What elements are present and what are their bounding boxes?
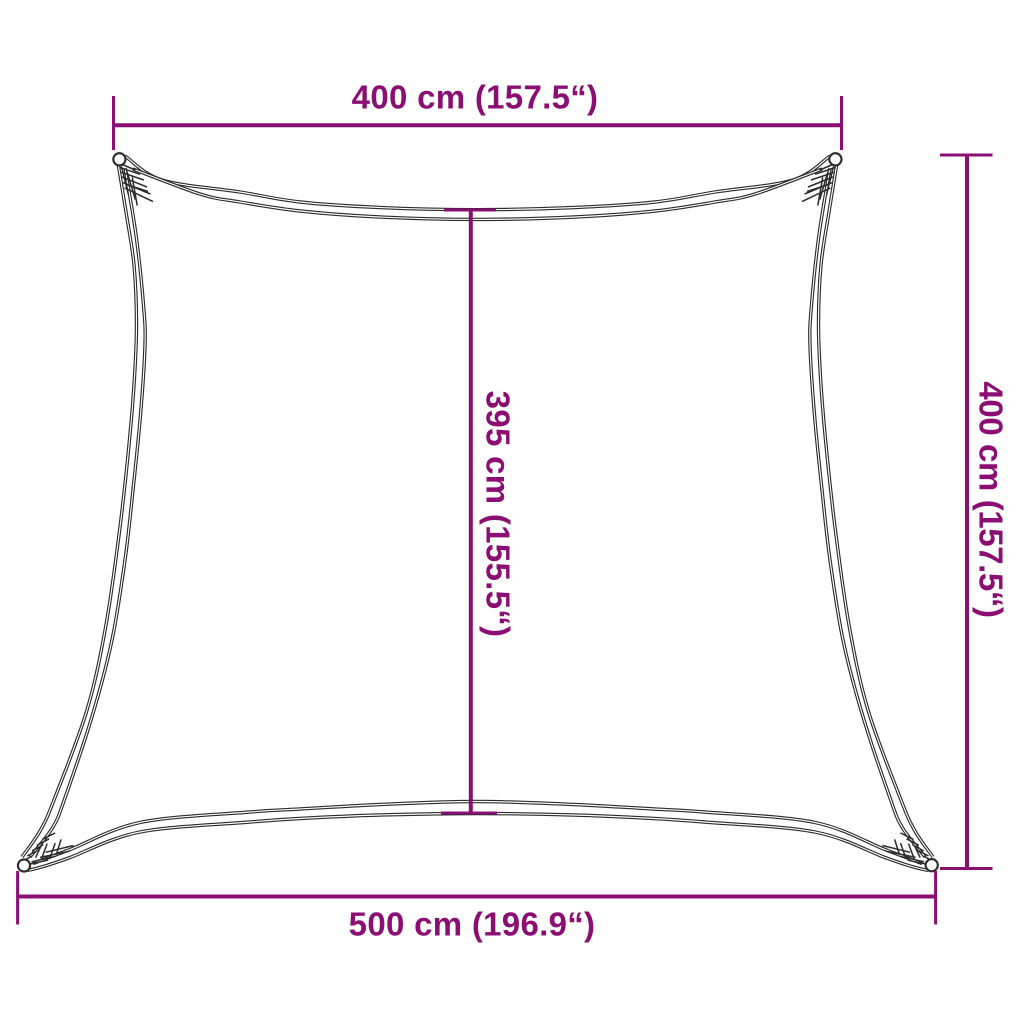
svg-text:500 cm (196.9“): 500 cm (196.9“) bbox=[349, 906, 596, 943]
svg-text:400 cm (157.5“): 400 cm (157.5“) bbox=[972, 381, 1009, 617]
svg-text:395 cm (155.5“): 395 cm (155.5“) bbox=[480, 391, 517, 638]
svg-text:400 cm (157.5“): 400 cm (157.5“) bbox=[352, 79, 599, 116]
